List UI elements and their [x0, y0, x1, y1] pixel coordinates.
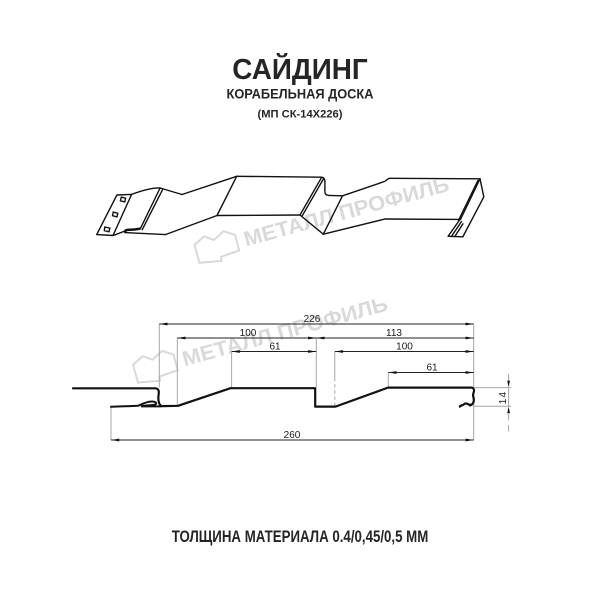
svg-text:САЙДИНГ: САЙДИНГ	[232, 52, 368, 86]
svg-text:61: 61	[269, 342, 281, 353]
svg-text:14: 14	[498, 391, 509, 405]
svg-text:МЕТАЛЛ ПРОФИЛЬ: МЕТАЛЛ ПРОФИЛЬ	[180, 293, 391, 371]
svg-text:226: 226	[304, 314, 321, 325]
svg-text:ТОЛЩИНА МАТЕРИАЛА 0.4/0,45/0,5: ТОЛЩИНА МАТЕРИАЛА 0.4/0,45/0,5 ММ	[172, 527, 429, 546]
svg-text:(МП СК-14Х226): (МП СК-14Х226)	[258, 109, 343, 121]
svg-text:КОРАБЕЛЬНАЯ ДОСКА: КОРАБЕЛЬНАЯ ДОСКА	[227, 86, 374, 102]
svg-text:113: 113	[386, 328, 402, 339]
svg-text:100: 100	[396, 342, 413, 353]
svg-text:100: 100	[240, 328, 257, 339]
svg-text:260: 260	[284, 430, 301, 441]
svg-text:61: 61	[426, 363, 438, 374]
